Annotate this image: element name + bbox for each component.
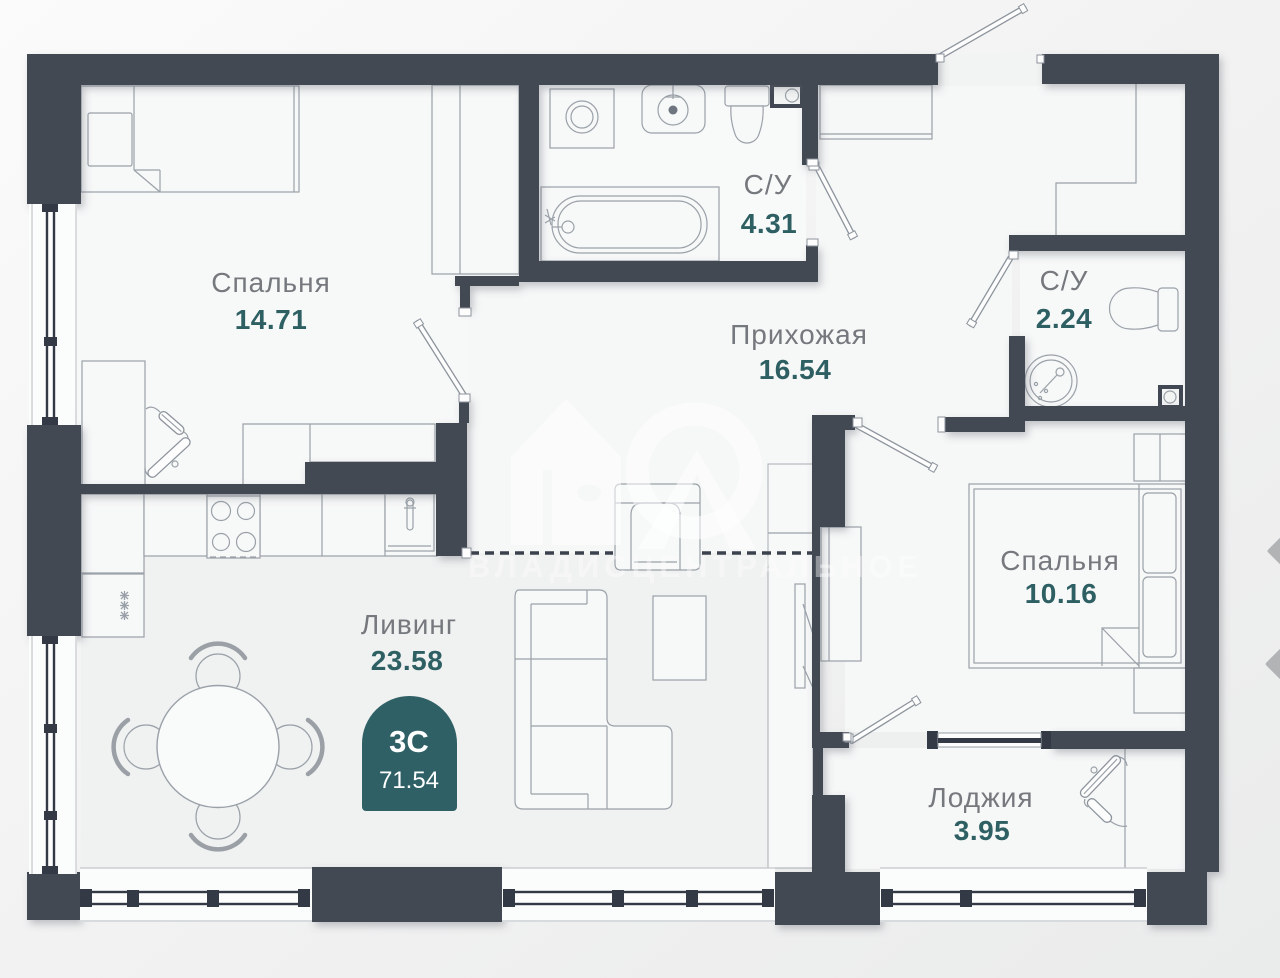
svg-text:С/У: С/У <box>1040 265 1089 296</box>
svg-text:Лоджия: Лоджия <box>928 782 1033 813</box>
svg-text:3.95: 3.95 <box>954 815 1011 846</box>
svg-text:ВЛАДИСЦЕНТРАЛЬНОЕ: ВЛАДИСЦЕНТРАЛЬНОЕ <box>468 549 923 584</box>
svg-text:71.54: 71.54 <box>379 767 439 794</box>
svg-text:14.71: 14.71 <box>235 304 308 335</box>
svg-text:3С: 3С <box>389 724 429 759</box>
svg-text:23.58: 23.58 <box>371 645 444 676</box>
svg-text:10.16: 10.16 <box>1025 578 1098 609</box>
svg-text:Спальня: Спальня <box>211 267 331 298</box>
svg-text:Ливинг: Ливинг <box>361 609 457 640</box>
svg-text:2.24: 2.24 <box>1036 303 1093 334</box>
svg-text:Прихожая: Прихожая <box>730 319 868 350</box>
svg-text:С/У: С/У <box>744 169 793 200</box>
svg-text:16.54: 16.54 <box>759 354 832 385</box>
svg-text:4.31: 4.31 <box>741 208 798 239</box>
svg-text:Спальня: Спальня <box>1000 545 1120 576</box>
